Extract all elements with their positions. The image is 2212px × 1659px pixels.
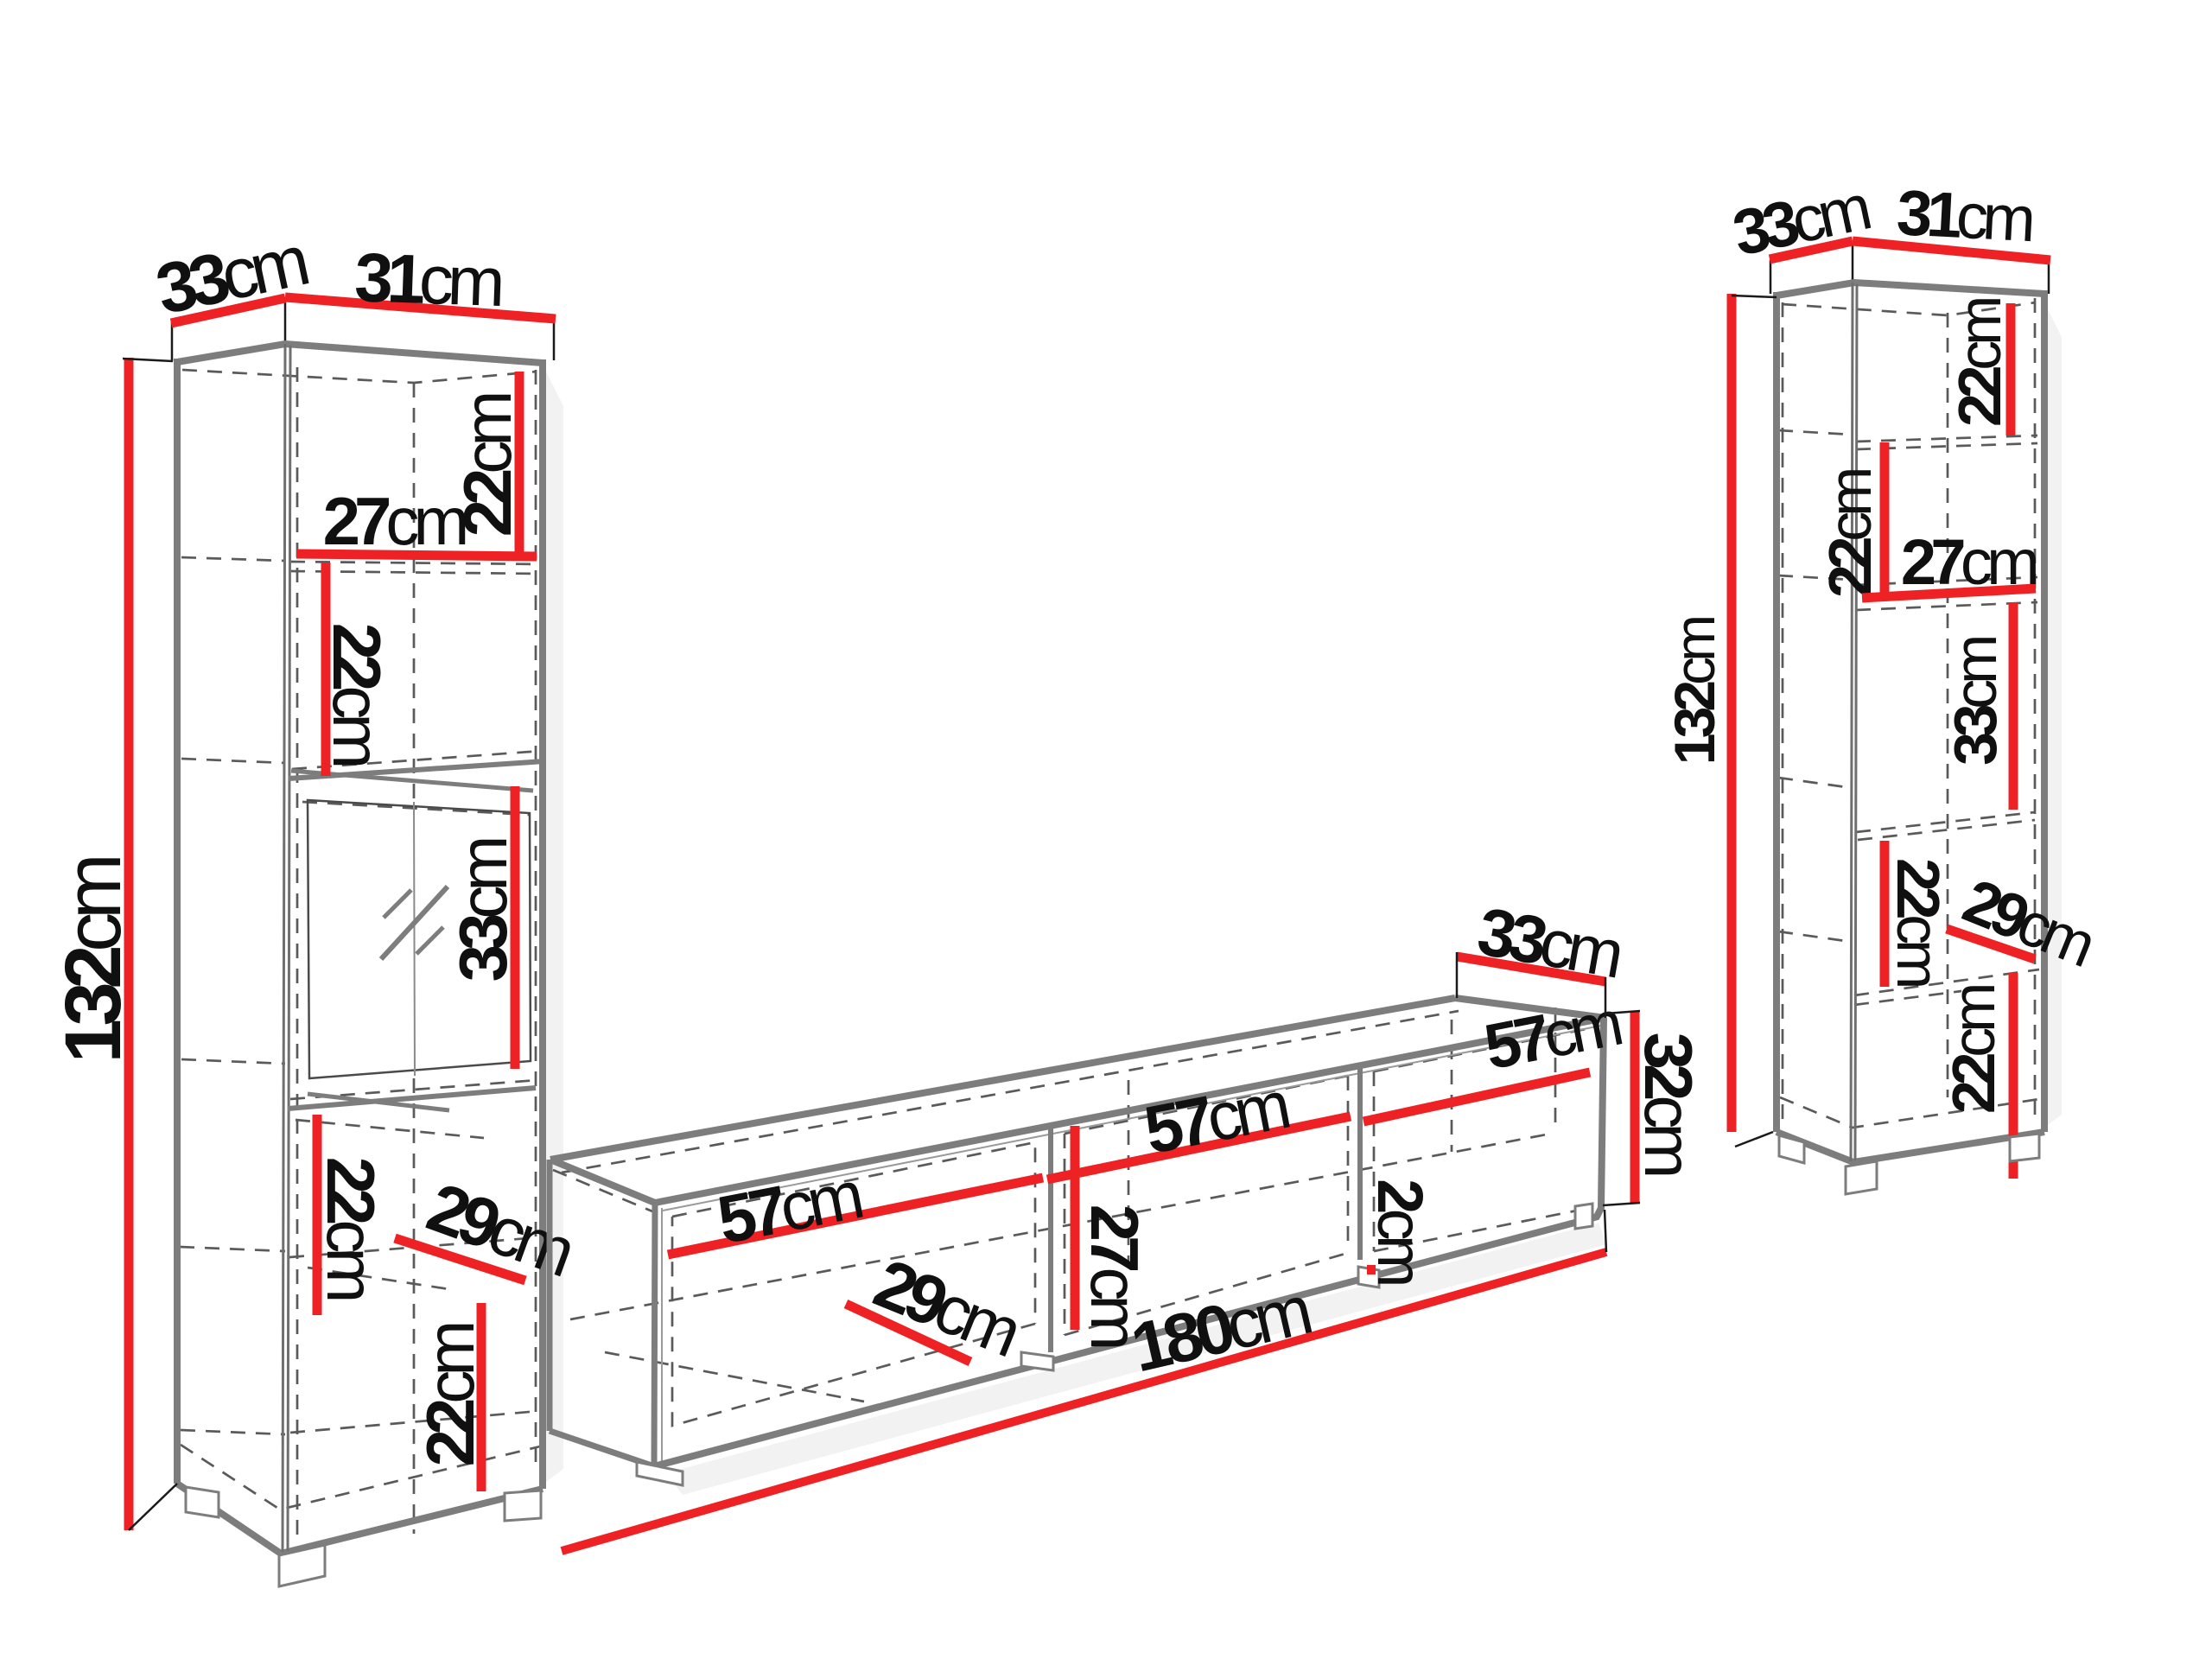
svg-text:22cm: 22cm — [1816, 470, 1884, 598]
svg-text:132cm: 132cm — [1662, 618, 1726, 765]
svg-text:22cm: 22cm — [449, 395, 525, 537]
svg-text:22cm: 22cm — [1885, 858, 1952, 986]
svg-text:31cm: 31cm — [353, 238, 502, 321]
svg-text:132cm: 132cm — [49, 858, 137, 1063]
svg-text:22cm: 22cm — [1946, 299, 2013, 427]
svg-text:31cm: 31cm — [1895, 176, 2033, 255]
svg-text:22cm: 22cm — [313, 1157, 389, 1300]
svg-text:22cm: 22cm — [412, 1325, 488, 1467]
svg-text:32cm: 32cm — [1630, 1033, 1707, 1175]
svg-text:22cm: 22cm — [1940, 986, 2007, 1114]
svg-text:27cm: 27cm — [323, 483, 466, 559]
svg-text:22cm: 22cm — [319, 623, 395, 766]
svg-text:33cm: 33cm — [445, 840, 521, 982]
svg-text:2cm: 2cm — [1364, 1179, 1436, 1284]
svg-text:33cm: 33cm — [1942, 638, 2009, 766]
svg-text:27cm: 27cm — [1901, 526, 2036, 598]
